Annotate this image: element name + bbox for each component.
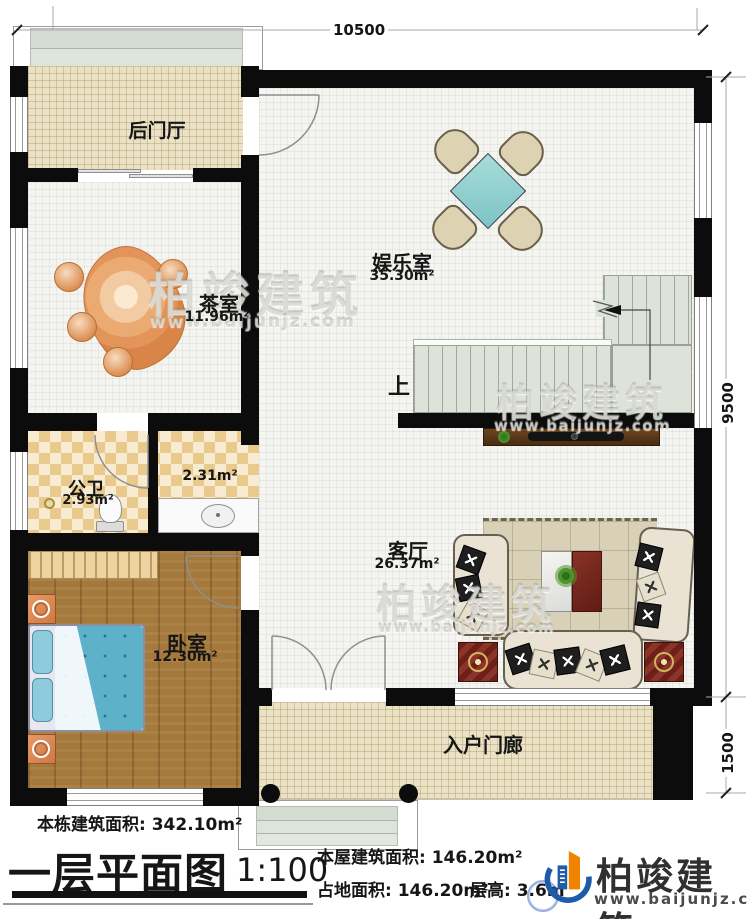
floor-plan-page: 柏竣建筑 www.baijunjz.com 柏竣建筑 www.baijunjz.… — [0, 0, 750, 919]
title-thin-line — [3, 903, 313, 905]
brand-url: www.baijunjz.com — [594, 890, 750, 908]
door-arc-bedroom — [186, 556, 238, 608]
house-area: 本屋建筑面积: 146.20m² — [317, 843, 522, 868]
scale-label: 1:100 — [236, 851, 328, 889]
dimension-top: 10500 — [330, 21, 388, 39]
room-area-bedroom: 12.30m² — [152, 649, 217, 665]
room-area-living: 26.37m² — [374, 556, 439, 572]
brand-logo-icon — [544, 843, 592, 907]
room-label-porch: 入户门廊 — [443, 729, 523, 758]
land-area: 占地面积: 146.20m² — [317, 876, 488, 901]
dimension-lines — [17, 6, 746, 793]
door-arc-backhall — [259, 95, 319, 155]
room-area-tea: 11.96m² — [184, 309, 249, 325]
room-area-entertainment: 35.30m² — [369, 268, 434, 284]
dimension-ticks — [12, 25, 731, 798]
room-area-bathroom: 2.93m² — [62, 493, 113, 508]
plan-linework — [0, 0, 750, 860]
dimension-right-porch: 1500 — [719, 729, 737, 777]
title-underline — [12, 891, 307, 898]
total-building-area: 本栋建筑面积: 342.10m² — [37, 810, 242, 835]
room-area-vestibule: 2.31m² — [182, 468, 237, 484]
room-label-back-hall: 后门厅 — [128, 116, 185, 143]
brand-name: 柏竣建筑 — [596, 846, 750, 919]
stairs-up-label: 上 — [388, 369, 410, 401]
door-arc-front-double — [272, 636, 385, 690]
dimension-right-main: 9500 — [719, 379, 737, 427]
